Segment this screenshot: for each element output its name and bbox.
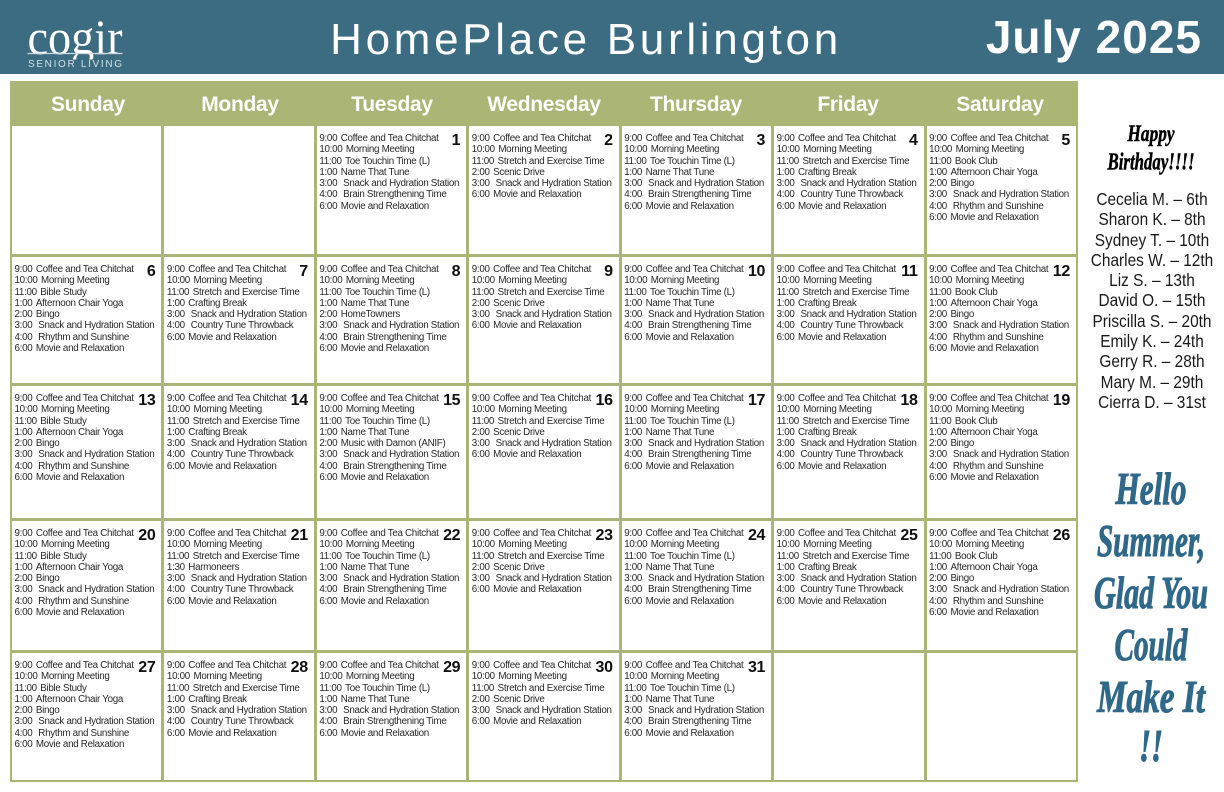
svg-text:Make It: Make It: [1096, 672, 1206, 722]
svg-text:Glad You: Glad You: [1094, 568, 1208, 618]
svg-text:Happy: Happy: [1127, 121, 1175, 146]
svg-text:Birthday!!!!: Birthday!!!!: [1107, 149, 1195, 176]
svg-text:Could: Could: [1115, 620, 1189, 670]
svg-text:!!: !!: [1139, 721, 1163, 771]
svg-text:Hello: Hello: [1115, 464, 1187, 514]
svg-text:Summer,: Summer,: [1097, 516, 1205, 566]
